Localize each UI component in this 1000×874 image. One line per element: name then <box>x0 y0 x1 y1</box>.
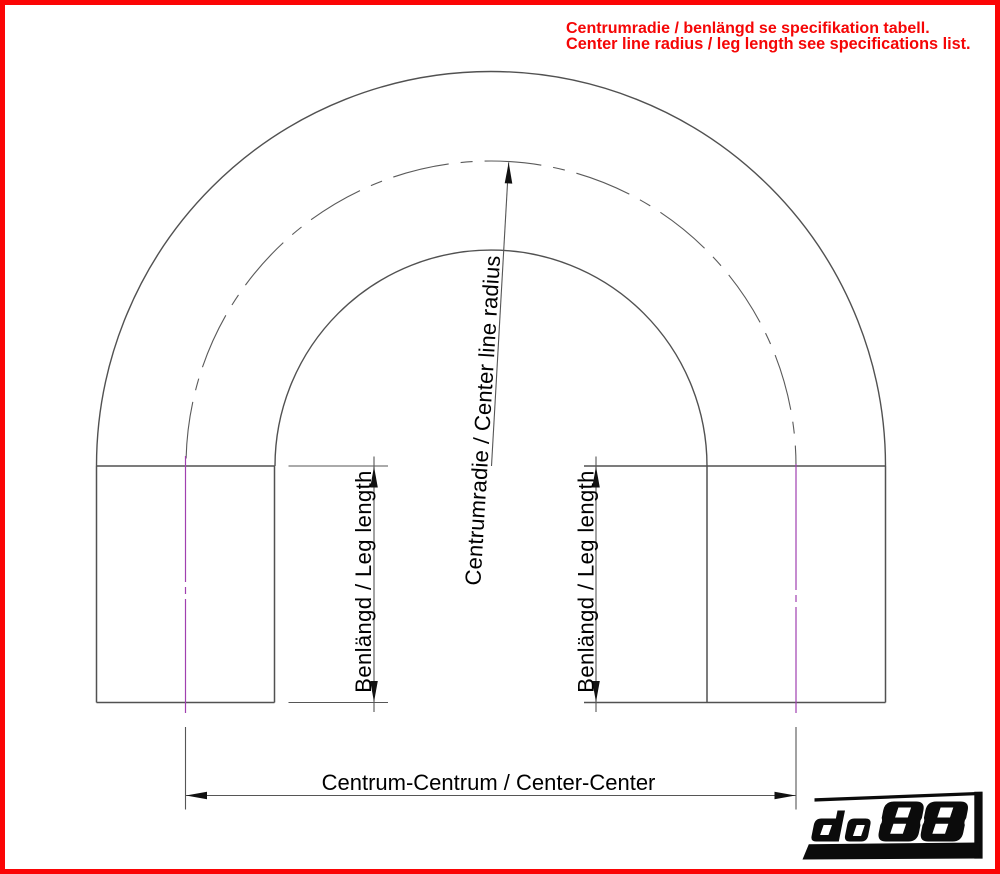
svg-text:Benlängd / Leg length: Benlängd / Leg length <box>351 470 376 692</box>
svg-text:Centrum-Centrum / Center-Cente: Centrum-Centrum / Center-Center <box>322 770 656 795</box>
svg-text:Center line radius / leg lengt: Center line radius / leg length see spec… <box>566 35 971 53</box>
svg-text:Benlängd / Leg length: Benlängd / Leg length <box>574 470 599 692</box>
